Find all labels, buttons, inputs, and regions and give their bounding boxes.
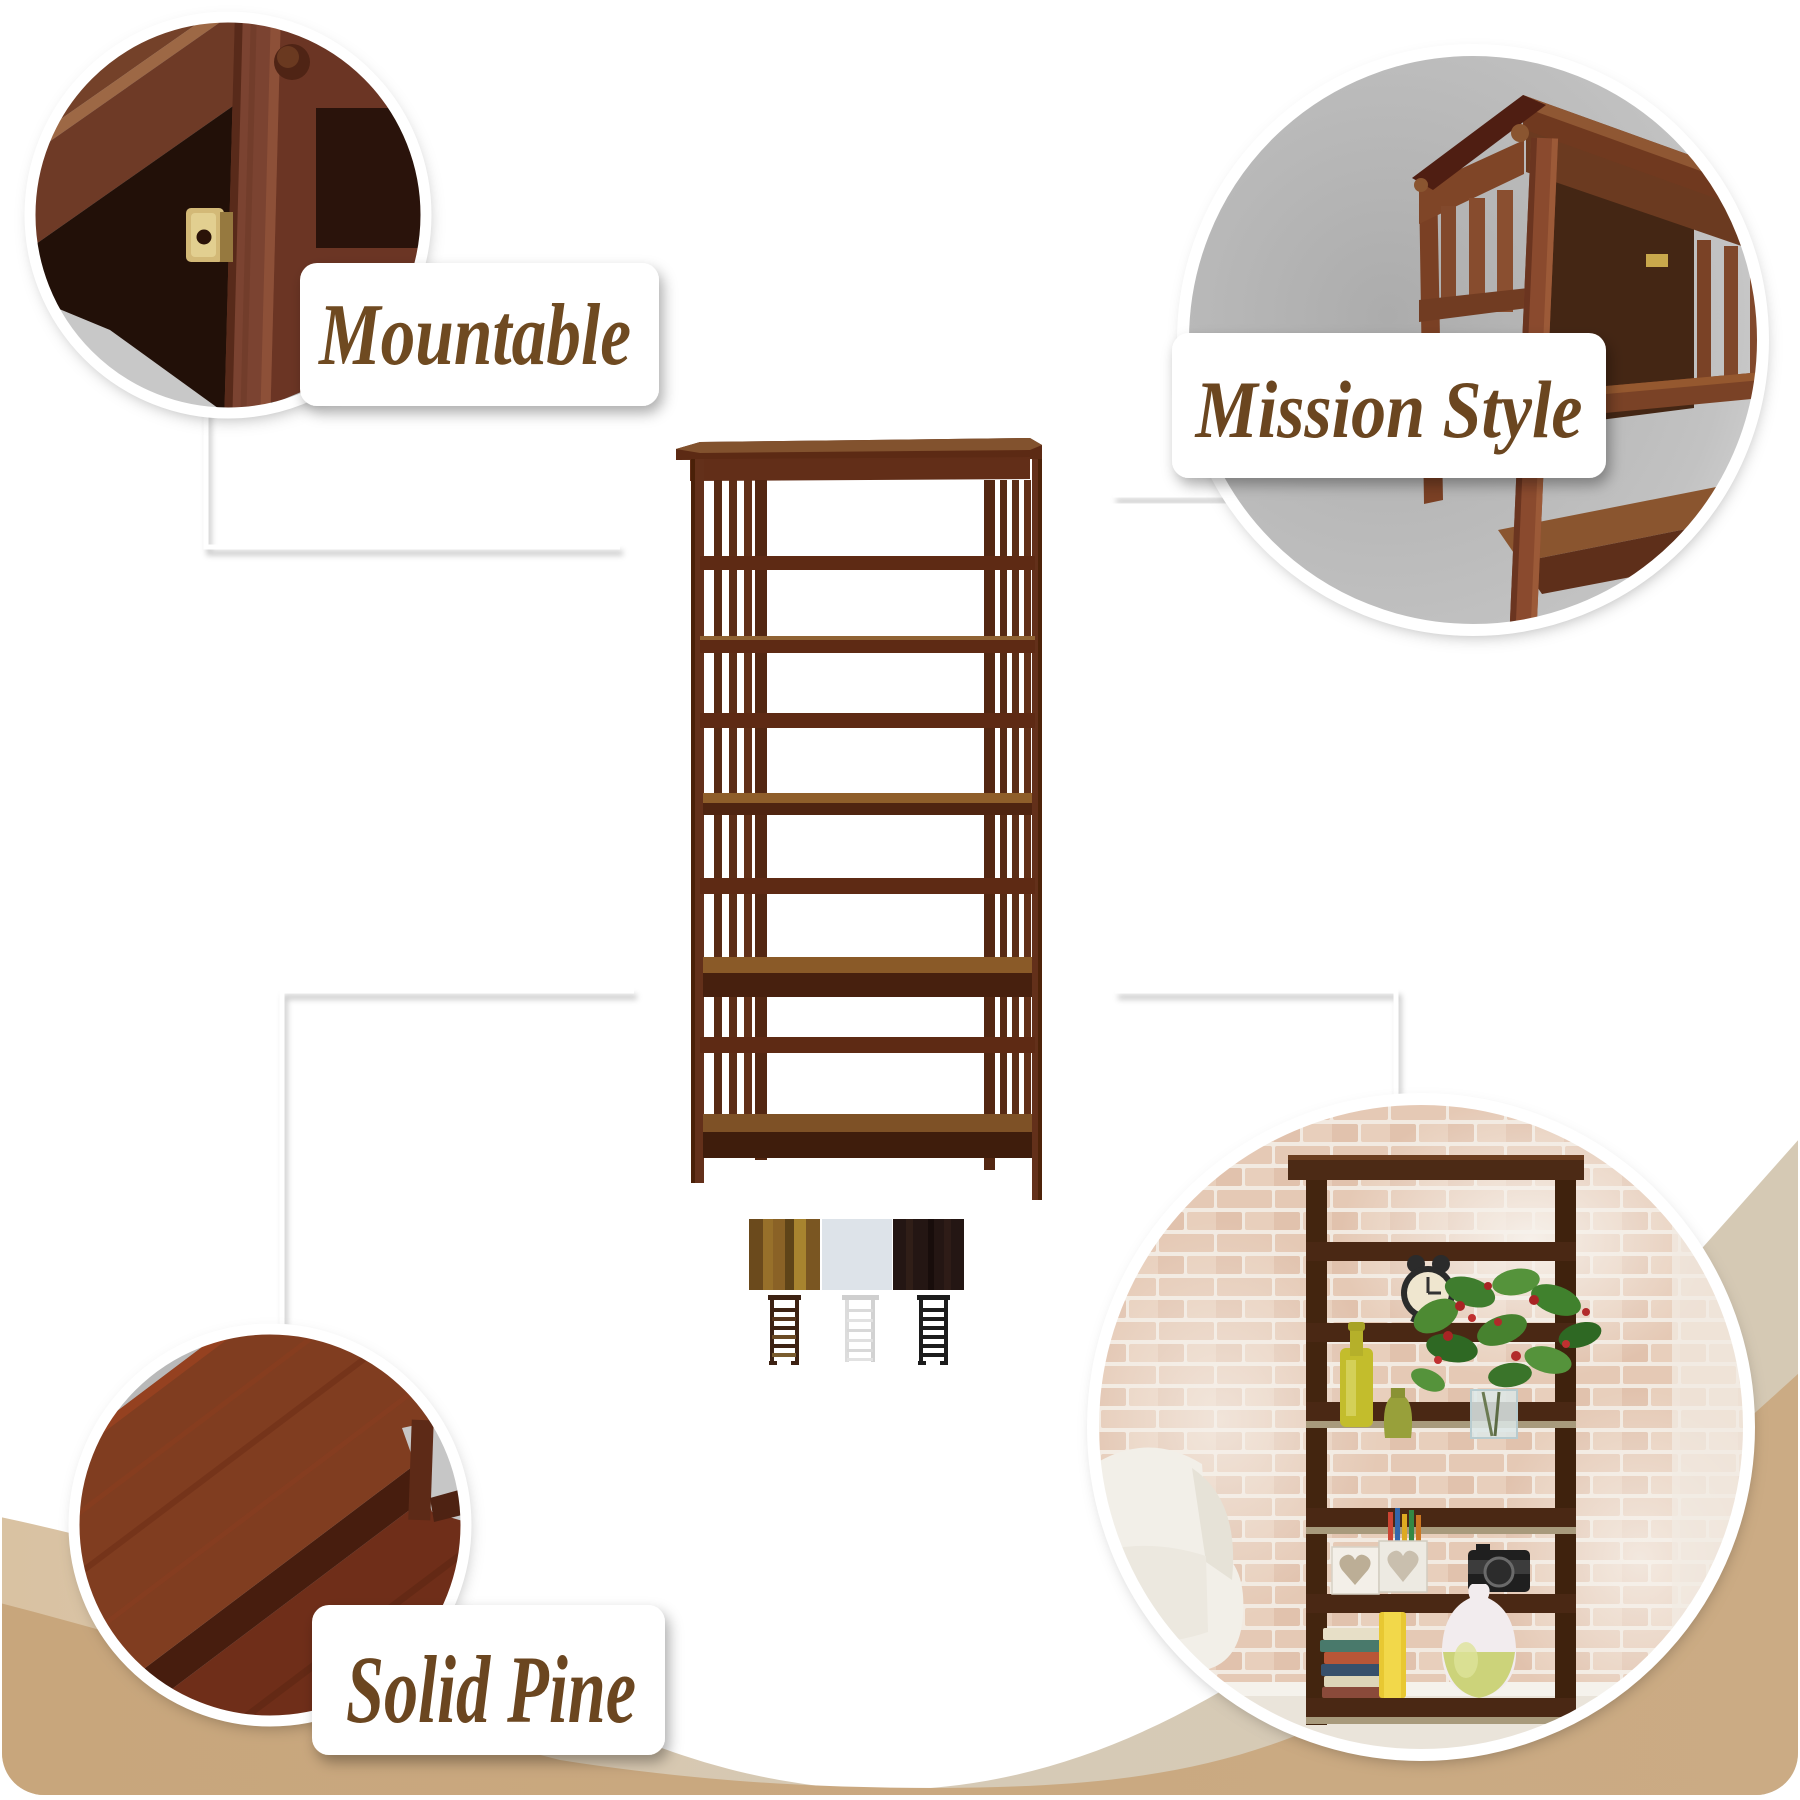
svg-text:Mountable: Mountable <box>317 287 631 384</box>
svg-text:Solid Pine: Solid Pine <box>346 1636 636 1743</box>
svg-text:Mission Style: Mission Style <box>1194 364 1583 455</box>
